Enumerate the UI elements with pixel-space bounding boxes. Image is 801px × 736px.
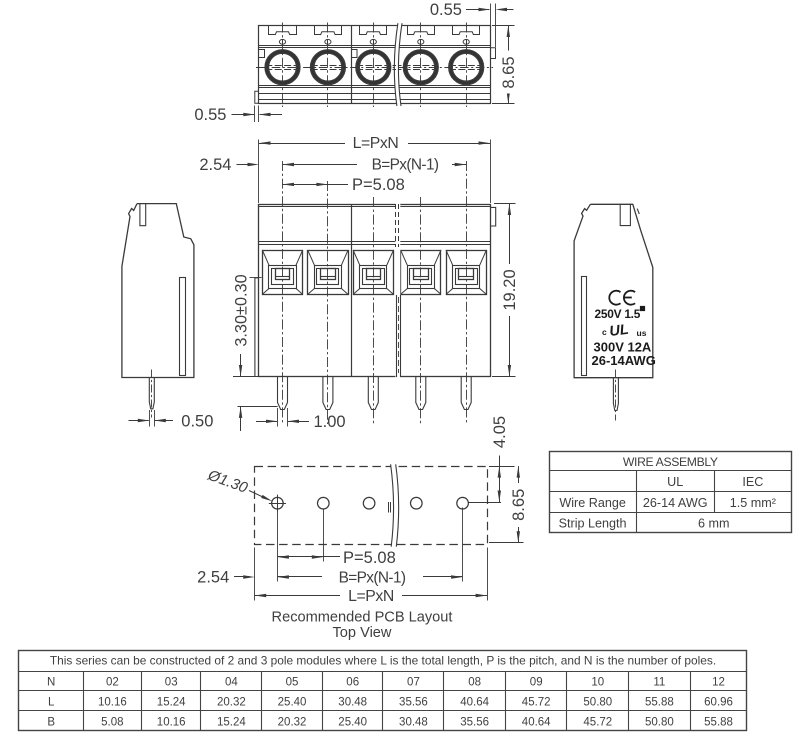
svg-text:55.88: 55.88: [704, 716, 733, 728]
svg-text:60.96: 60.96: [704, 696, 733, 708]
svg-text:UL: UL: [609, 322, 630, 340]
svg-text:50.80: 50.80: [583, 696, 612, 708]
svg-text:Strip Length: Strip Length: [559, 517, 627, 531]
svg-text:0.55: 0.55: [430, 1, 462, 19]
svg-text:55.88: 55.88: [645, 696, 674, 708]
svg-text:0.55: 0.55: [194, 106, 226, 124]
svg-text:11: 11: [653, 676, 665, 688]
svg-text:250V 1.5: 250V 1.5: [595, 307, 641, 321]
svg-text:08: 08: [468, 676, 481, 688]
svg-text:4.05: 4.05: [491, 416, 509, 448]
svg-text:P=5.08: P=5.08: [352, 176, 405, 194]
svg-text:12: 12: [712, 676, 725, 688]
svg-text:45.72: 45.72: [522, 696, 551, 708]
svg-text:B: B: [47, 716, 55, 728]
svg-text:35.56: 35.56: [399, 696, 428, 708]
svg-text:10.16: 10.16: [98, 696, 127, 708]
svg-text:05: 05: [286, 676, 299, 688]
svg-text:1.00: 1.00: [314, 413, 346, 431]
svg-text:50.80: 50.80: [645, 716, 674, 728]
svg-text:B=Px(N-1): B=Px(N-1): [339, 569, 406, 586]
svg-text:30.48: 30.48: [338, 696, 367, 708]
svg-text:10.16: 10.16: [157, 716, 186, 728]
svg-text:6 mm: 6 mm: [698, 517, 729, 531]
svg-text:35.56: 35.56: [460, 716, 489, 728]
svg-text:Recommended PCB Layout: Recommended PCB Layout: [272, 610, 453, 626]
svg-text:45.72: 45.72: [583, 716, 612, 728]
svg-text:0.50: 0.50: [181, 412, 213, 430]
svg-text:07: 07: [407, 676, 420, 688]
svg-text:25.40: 25.40: [338, 716, 367, 728]
svg-text:B=Px(N-1): B=Px(N-1): [372, 156, 439, 173]
svg-text:25.40: 25.40: [278, 696, 307, 708]
svg-text:N: N: [47, 676, 55, 688]
svg-text:20.32: 20.32: [217, 696, 246, 708]
svg-text:UL: UL: [667, 475, 683, 489]
svg-text:40.64: 40.64: [522, 716, 551, 728]
svg-text:Wire Range: Wire Range: [559, 496, 626, 510]
svg-text:40.64: 40.64: [460, 696, 489, 708]
svg-text:09: 09: [530, 676, 543, 688]
svg-text:L=PxN: L=PxN: [348, 588, 394, 605]
svg-text:8.65: 8.65: [510, 489, 528, 521]
svg-text:06: 06: [346, 676, 359, 688]
svg-text:10: 10: [591, 676, 604, 688]
svg-text:20.32: 20.32: [278, 716, 307, 728]
svg-text:2.54: 2.54: [197, 568, 229, 586]
svg-text:15.24: 15.24: [217, 716, 246, 728]
svg-text:2.54: 2.54: [199, 156, 231, 174]
svg-text:04: 04: [225, 676, 238, 688]
svg-text:26-14 AWG: 26-14 AWG: [643, 496, 708, 510]
svg-text:30.48: 30.48: [399, 716, 428, 728]
svg-text:03: 03: [165, 676, 178, 688]
svg-text:This series can be constructed: This series can be constructed of 2 and …: [50, 654, 716, 668]
svg-text:L: L: [48, 696, 55, 708]
svg-text:Ø1.30: Ø1.30: [205, 466, 251, 497]
svg-text:P=5.08: P=5.08: [343, 549, 396, 567]
svg-text:Top View: Top View: [333, 625, 392, 641]
svg-text:us: us: [637, 328, 647, 338]
svg-text:WIRE ASSEMBLY: WIRE ASSEMBLY: [623, 455, 718, 469]
svg-text:IEC: IEC: [742, 475, 763, 489]
svg-text:3.30±0.30: 3.30±0.30: [232, 274, 250, 346]
svg-text:8.65: 8.65: [500, 56, 518, 88]
svg-text:5.08: 5.08: [101, 716, 123, 728]
svg-text:1.5 mm²: 1.5 mm²: [730, 496, 776, 510]
svg-text:26-14AWG: 26-14AWG: [592, 353, 656, 368]
svg-text:15.24: 15.24: [157, 696, 186, 708]
svg-text:19.20: 19.20: [501, 269, 519, 310]
svg-text:L=PxN: L=PxN: [353, 135, 399, 152]
svg-text:c: c: [602, 327, 607, 337]
svg-text:02: 02: [106, 676, 119, 688]
